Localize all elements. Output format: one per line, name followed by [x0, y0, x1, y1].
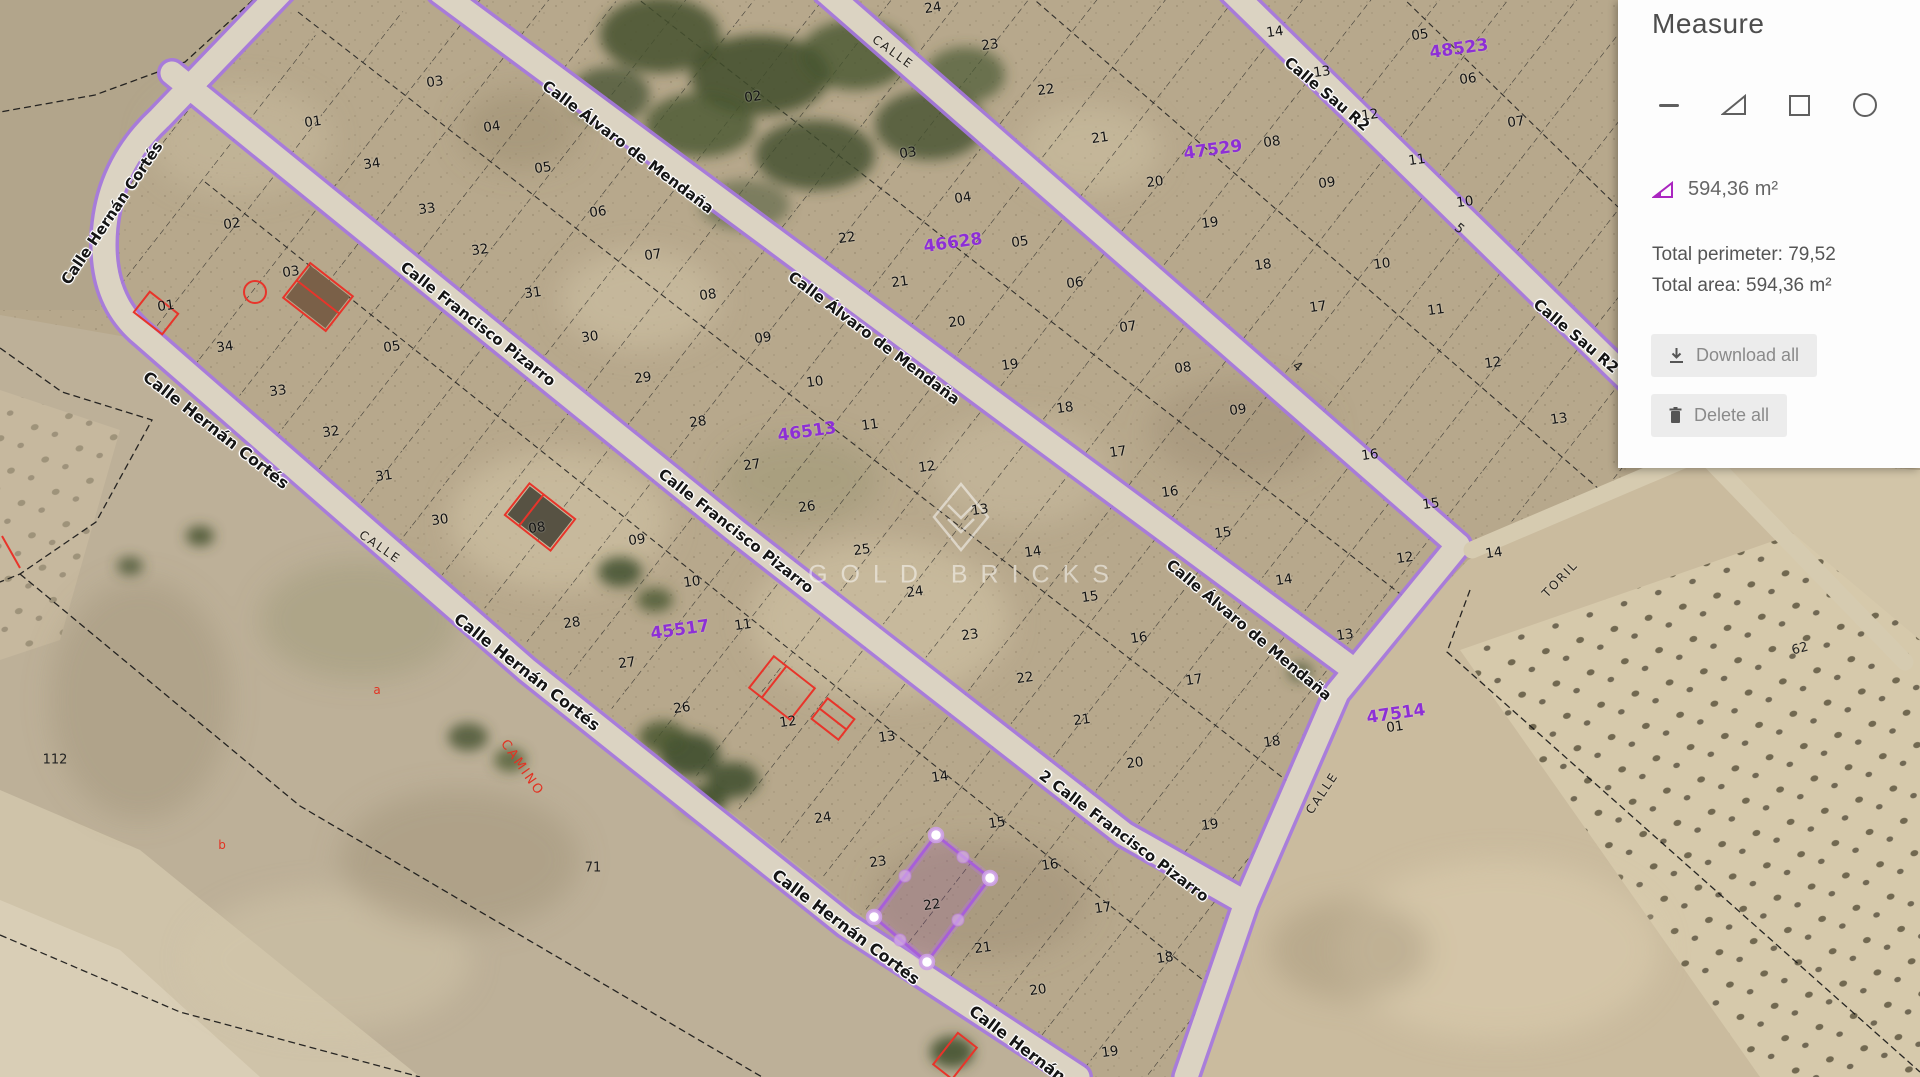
- square-icon: [1789, 95, 1810, 116]
- midpoint-handle[interactable]: [952, 914, 964, 926]
- triangle-icon: [1721, 94, 1747, 116]
- midpoint-handle[interactable]: [899, 870, 911, 882]
- download-all-button[interactable]: Download all: [1651, 334, 1817, 377]
- watermark-text: GOLD BRICKS: [808, 561, 1122, 590]
- area-measure-icon: [1652, 181, 1674, 199]
- total-perimeter-text: Total perimeter: 79,52: [1652, 239, 1836, 270]
- midpoint-handle[interactable]: [957, 851, 969, 863]
- download-icon: [1669, 347, 1684, 364]
- circle-icon: [1853, 93, 1877, 117]
- delete-all-label: Delete all: [1694, 405, 1769, 426]
- vertex-handle[interactable]: [984, 872, 997, 885]
- delete-all-button[interactable]: Delete all: [1651, 394, 1787, 437]
- minus-line-icon: [1659, 104, 1679, 107]
- rectangle-tool-button[interactable]: [1783, 88, 1817, 122]
- panel-title: Measure: [1652, 8, 1764, 40]
- measurement-item[interactable]: 594,36 m²: [1652, 178, 1778, 201]
- measure-panel: Measure 594,36 m² Total perimeter: 79,52…: [1618, 0, 1920, 468]
- total-area-text: Total area: 594,36 m²: [1652, 270, 1836, 301]
- download-all-label: Download all: [1696, 345, 1799, 366]
- totals-block: Total perimeter: 79,52 Total area: 594,3…: [1652, 239, 1836, 301]
- circle-tool-button[interactable]: [1848, 88, 1882, 122]
- vertex-handle[interactable]: [868, 911, 881, 924]
- line-tool-button[interactable]: [1652, 88, 1686, 122]
- midpoint-handle[interactable]: [894, 934, 906, 946]
- trash-icon: [1669, 407, 1682, 424]
- measurement-value: 594,36 m²: [1688, 178, 1778, 201]
- vertex-handle[interactable]: [930, 829, 943, 842]
- measure-tools-row: [1652, 88, 1882, 122]
- vertex-handle[interactable]: [921, 956, 934, 969]
- measured-polygon[interactable]: [874, 835, 990, 962]
- area-tool-button[interactable]: [1717, 88, 1751, 122]
